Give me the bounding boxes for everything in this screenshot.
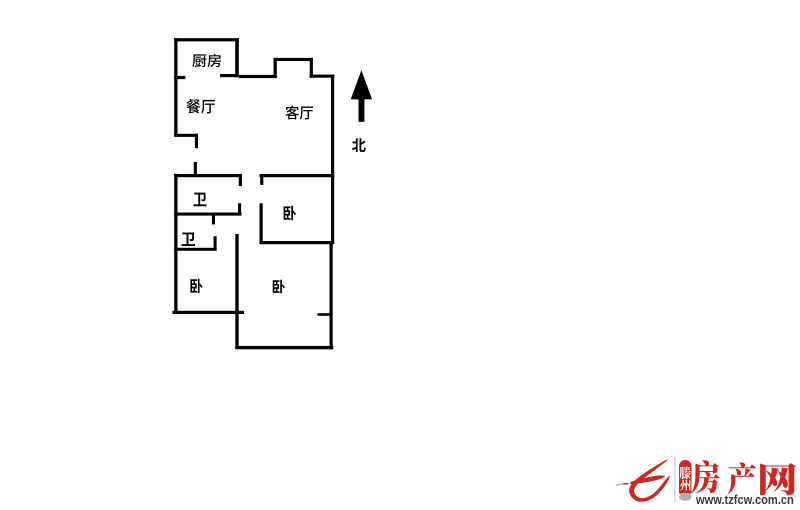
svg-text:www.tzfcw.com.cn: www.tzfcw.com.cn xyxy=(695,492,794,507)
